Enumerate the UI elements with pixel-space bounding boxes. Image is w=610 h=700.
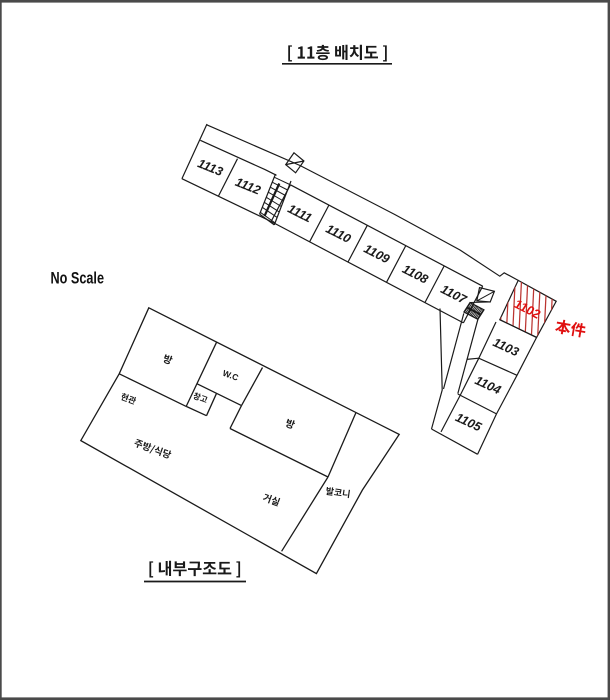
- svg-text:No Scale: No Scale: [51, 270, 105, 288]
